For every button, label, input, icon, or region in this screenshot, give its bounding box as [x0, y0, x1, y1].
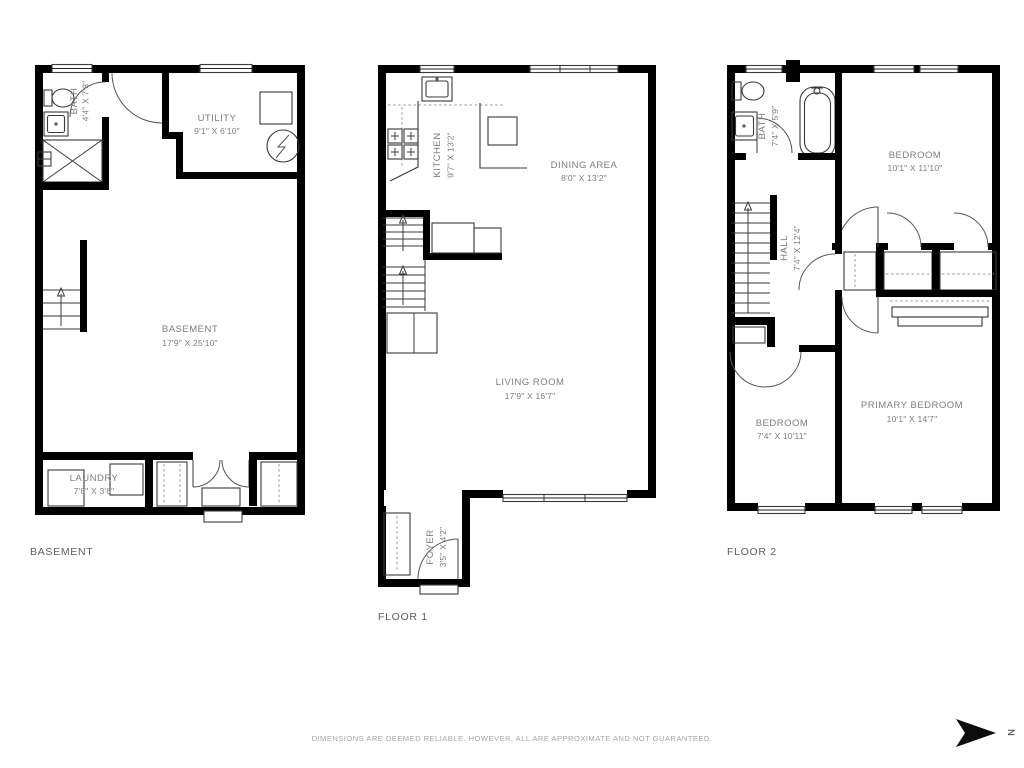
- compass: N: [948, 703, 1018, 753]
- wall: [799, 345, 842, 352]
- room-dims-kitchen: 9'7" X 13'2": [446, 132, 456, 178]
- wall: [876, 290, 1000, 297]
- north-arrow-icon: [956, 719, 996, 747]
- room-dims-bath2: 7'4" X 5'9": [770, 106, 780, 147]
- wall: [798, 153, 835, 160]
- room-label-bedroom2: BEDROOM: [756, 418, 809, 429]
- room-label-living: LIVING ROOM: [496, 377, 565, 388]
- wall: [767, 317, 775, 347]
- room-label-bedroom1: BEDROOM: [889, 150, 942, 161]
- wall-opening: [384, 490, 410, 506]
- room-dims-foyer: 3'5" X 4'2": [438, 527, 448, 568]
- wall: [145, 452, 153, 511]
- room-dims-laundry: 7'8" X 3'6": [74, 486, 115, 496]
- window-icon: [758, 503, 805, 518]
- wall: [39, 182, 109, 190]
- basement-label: BASEMENT: [30, 546, 93, 558]
- wall: [786, 60, 800, 82]
- room-dims-bath: 4'4" X 7'3": [81, 81, 91, 122]
- room-dims-utility: 9'1" X 6'10": [194, 126, 240, 136]
- floor2-floorplan: BATH 7'4" X 5'9" BEDROOM 10'1" X 11'10" …: [720, 55, 1010, 525]
- room-dims-basement: 17'9" X 25'10": [162, 338, 218, 348]
- floor2-label: FLOOR 2: [727, 546, 777, 558]
- room-label-utility: UTILITY: [198, 113, 237, 124]
- wall: [835, 160, 842, 254]
- window-icon: [503, 490, 627, 506]
- window-icon: [200, 61, 252, 77]
- wall: [835, 290, 842, 507]
- window-icon: [530, 61, 618, 77]
- sink-icon: [44, 112, 68, 136]
- basement-floorplan: BATH 4'4" X 7'3" UTILITY 9'1" X 6'10" BA…: [30, 60, 310, 525]
- room-dims-hall: 7'4" X 12'4": [792, 225, 802, 271]
- room-dims-bedroom1: 10'1" X 11'10": [888, 163, 943, 173]
- wall: [932, 250, 940, 297]
- window-icon: [52, 61, 92, 77]
- room-label-foyer: FOYER: [425, 529, 436, 564]
- wall: [727, 345, 733, 352]
- room-label-basement: BASEMENT: [162, 324, 218, 335]
- disclaimer-text: DIMENSIONS ARE DEEMED RELIABLE. HOWEVER,…: [0, 734, 1024, 743]
- room-dims-living: 17'9" X 16'7": [505, 391, 556, 401]
- floor1-floorplan: KITCHEN 9'7" X 13'2" DINING AREA 8'0" X …: [370, 55, 660, 595]
- room-label-dining: DINING AREA: [551, 160, 618, 171]
- window-icon: [746, 61, 782, 77]
- room-label-primary: PRIMARY BEDROOM: [861, 400, 963, 411]
- window-icon: [875, 503, 912, 518]
- window-icon: [874, 61, 914, 77]
- wall: [153, 452, 193, 460]
- compass-letter: N: [1005, 729, 1016, 736]
- sink-icon: [732, 112, 757, 140]
- floor1-label: FLOOR 1: [378, 611, 428, 623]
- room-label-laundry: LAUNDRY: [70, 473, 119, 484]
- wall: [835, 69, 842, 160]
- room-label-hall: HALL: [779, 235, 790, 261]
- room-label-kitchen: KITCHEN: [432, 132, 443, 177]
- wall: [249, 460, 257, 506]
- room-label-bath2: BATH: [757, 113, 768, 140]
- wall: [876, 250, 884, 292]
- room-label-bath: BATH: [69, 88, 80, 115]
- wall: [162, 73, 169, 132]
- room-dims-bedroom2: 7'4" X 10'11": [757, 431, 807, 441]
- window-icon: [922, 503, 962, 518]
- wall: [39, 452, 145, 460]
- wall: [731, 153, 746, 160]
- window-icon: [920, 61, 958, 77]
- window-icon: [420, 61, 454, 77]
- wall: [249, 452, 301, 460]
- room-dims-dining: 8'0" X 13'2": [561, 173, 607, 183]
- room-dims-primary: 10'1" X 14'7": [887, 414, 938, 424]
